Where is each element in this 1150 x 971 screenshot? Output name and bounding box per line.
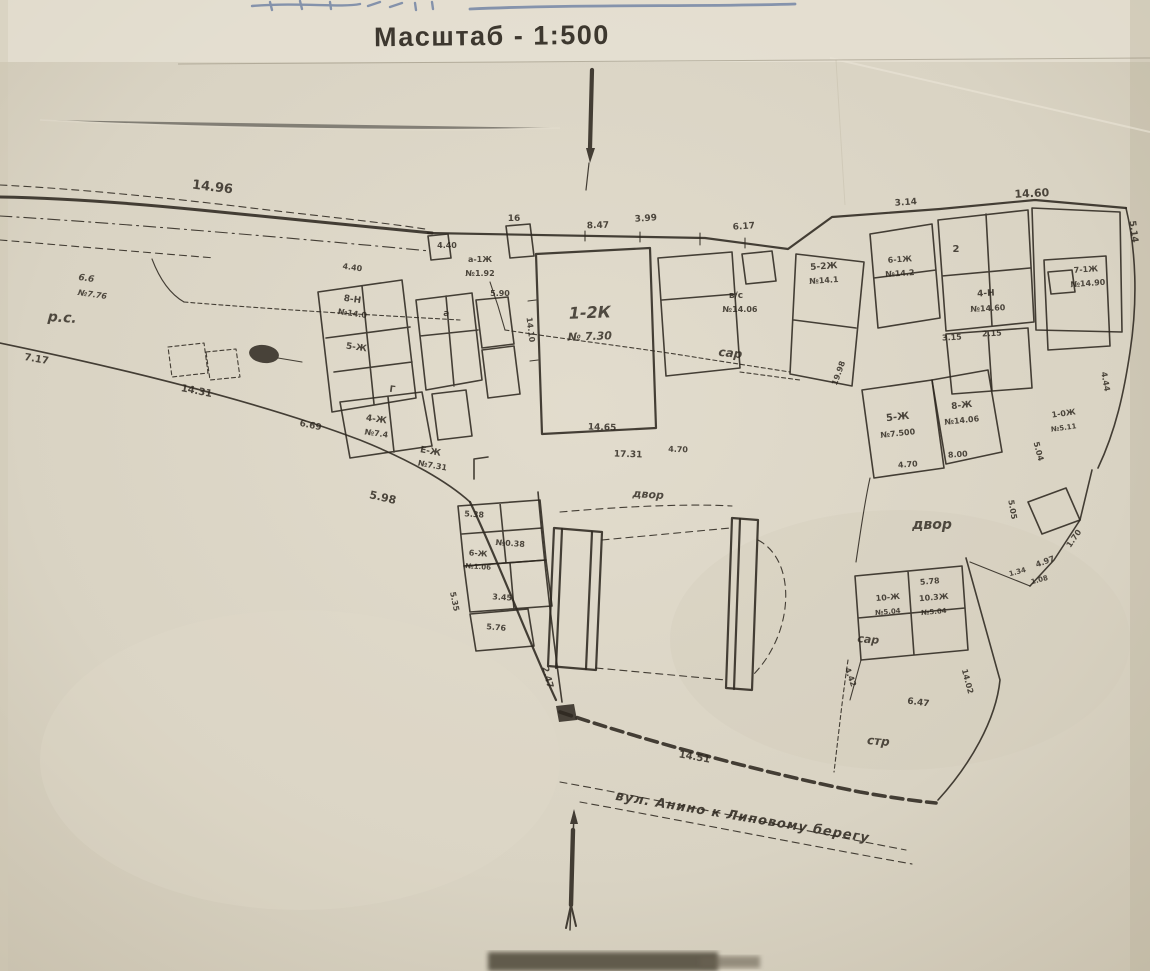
plan-label: №14.06 [723, 305, 758, 314]
site-plan-drawing: Масштаб - 1:500 [0, 0, 1150, 971]
plan-label: 3.45 [492, 592, 513, 602]
plan-label: 8.00 [948, 449, 969, 459]
plan-label: сар [857, 632, 880, 647]
plan-label: 8.47 [587, 221, 610, 232]
plan-label: 6-Ж [469, 548, 488, 558]
plan-label: р.с. [46, 309, 77, 327]
plan-label: 4.40 [437, 241, 457, 250]
plan-label: 4.70 [668, 445, 688, 455]
plan-label: 17.31 [614, 450, 643, 461]
plan-label: стр [866, 733, 890, 749]
plan-label: в/с [729, 291, 743, 301]
plan-label: 14.60 [1014, 186, 1050, 201]
plan-label: 4-Н [977, 289, 995, 300]
plan-label: 3.99 [634, 213, 657, 225]
plan-label: 14.65 [588, 423, 617, 434]
plan-label: 4.70 [898, 459, 919, 469]
plan-label: двор [631, 487, 664, 502]
plan-label: 5.78 [920, 576, 941, 587]
paper-background [0, 0, 1150, 971]
plan-label: двор [911, 517, 952, 533]
plan-label: 5.76 [486, 622, 507, 633]
plan-label: 3.14 [894, 197, 917, 209]
plan-label: 5-2Ж [810, 261, 838, 273]
plan-label: 7-1Ж [1073, 264, 1098, 275]
plan-label: а-1Ж [468, 255, 492, 264]
plan-label: сар [718, 345, 744, 361]
plan-label: №1.92 [465, 269, 494, 278]
plan-label: №14.60 [970, 303, 1006, 314]
plan-label: 3.15 [942, 332, 963, 342]
plan-label: 2.15 [982, 328, 1003, 338]
plan-label: 5.90 [490, 289, 510, 298]
plan-label: № 7.30 [567, 329, 613, 344]
plan-label: 6.17 [732, 221, 755, 233]
plan-label: 1-2К [568, 302, 612, 322]
plan-label: 16 [508, 214, 521, 224]
scale-title: Масштаб - 1:500 [374, 20, 610, 52]
plan-label: 6-1Ж [887, 254, 912, 265]
plan-label: 2 [953, 244, 960, 255]
scanned-site-plan-page: Масштаб - 1:500 [0, 0, 1150, 971]
plan-label: 5.38 [464, 509, 485, 519]
